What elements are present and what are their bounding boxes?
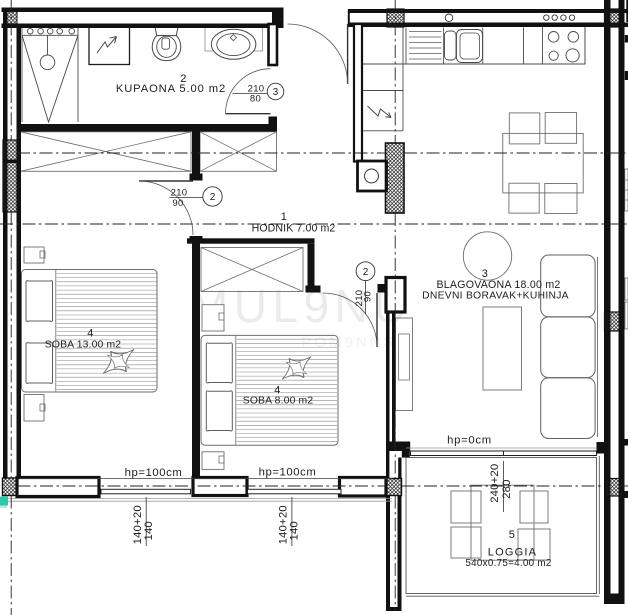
svg-text:140: 140 xyxy=(289,521,301,540)
svg-text:240+20: 240+20 xyxy=(489,464,501,503)
svg-text:90: 90 xyxy=(363,291,374,302)
svg-text:hp=100cm: hp=100cm xyxy=(125,467,183,479)
svg-text:1: 1 xyxy=(281,211,288,223)
svg-text:LOGGIA: LOGGIA xyxy=(488,547,537,559)
svg-text:2: 2 xyxy=(363,267,369,278)
svg-text:hp=0cm: hp=0cm xyxy=(447,435,492,447)
svg-text:280: 280 xyxy=(501,479,513,498)
svg-text:540x0.75=4.00 m2: 540x0.75=4.00 m2 xyxy=(465,558,551,569)
svg-text:5: 5 xyxy=(509,529,516,541)
svg-text:DNEVNI BORAVAK+KUHINJA: DNEVNI BORAVAK+KUHINJA xyxy=(422,290,569,301)
svg-text:BLAGOVAONA 18.00 m2: BLAGOVAONA 18.00 m2 xyxy=(436,279,560,291)
svg-text:HODNIK 7.00 m2: HODNIK 7.00 m2 xyxy=(252,223,336,235)
svg-text:SOBA 13.00 m2: SOBA 13.00 m2 xyxy=(45,340,122,351)
svg-text:2: 2 xyxy=(210,192,216,203)
svg-text:90: 90 xyxy=(172,198,183,209)
svg-text:KUPAONA 5.00 m2: KUPAONA 5.00 m2 xyxy=(116,83,226,95)
svg-text:POM9NNS: POM9NNS xyxy=(301,334,396,351)
svg-text:4: 4 xyxy=(87,327,94,339)
svg-text:3: 3 xyxy=(273,87,279,98)
svg-text:80: 80 xyxy=(250,94,261,105)
svg-text:SOBA 8.00 m2: SOBA 8.00 m2 xyxy=(243,396,314,407)
svg-text:140: 140 xyxy=(143,521,155,540)
svg-text:hp=100cm: hp=100cm xyxy=(259,467,317,479)
